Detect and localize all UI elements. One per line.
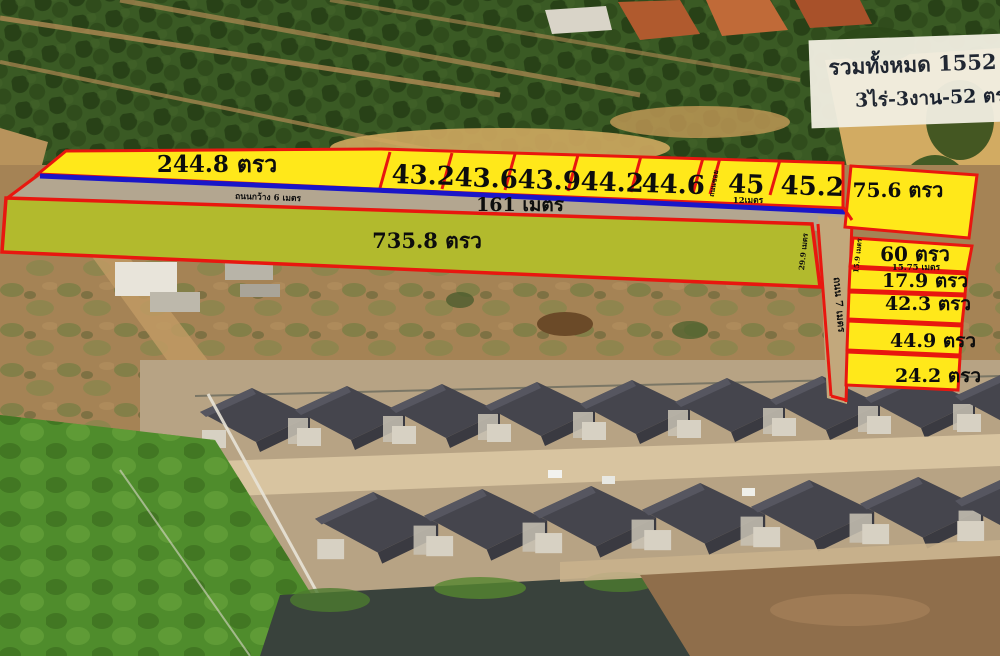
- car: [742, 488, 755, 496]
- label-plot-43-2: 43.2: [391, 160, 455, 192]
- label-road-width: ถนนกว้าง 6 เมตร: [235, 191, 302, 204]
- land-plot-listing-image: 244.8 ตรว 43.2 43.6 43.9 44.2 44.6 45 12…: [0, 0, 1000, 656]
- label-road-length: 161 เมตร: [476, 194, 565, 216]
- label-plot-75-6: 75.6 ตรว: [853, 178, 944, 202]
- label-plot-43-6: 43.6: [454, 163, 518, 195]
- label-plot-44-6: 44.6: [641, 169, 705, 201]
- label-plot-45-width: 12เมตร: [733, 196, 764, 206]
- summary-rai-ngan-wa: 3ไร่-3งาน-52 ตรว: [810, 78, 1000, 117]
- summary-total: รวมทั้งหมด 1552 ตรว: [809, 43, 1000, 85]
- label-plot-42-3: 42.3 ตรว: [885, 293, 971, 315]
- label-plot-17-9: 17.9 ตรว: [882, 270, 968, 292]
- label-plot-244-8: 244.8 ตรว: [157, 151, 277, 178]
- plot-75-6: [845, 166, 977, 238]
- car: [602, 476, 615, 484]
- label-plot-44-2: 44.2: [580, 167, 644, 199]
- label-plot-24-2: 24.2 ตรว: [895, 365, 981, 387]
- dirt-pile: [537, 312, 593, 336]
- label-plot-43-9: 43.9: [517, 165, 581, 197]
- car: [548, 470, 562, 478]
- label-plot-45-2: 45.2: [780, 171, 844, 203]
- label-plot-735-8: 735.8 ตรว: [372, 228, 482, 253]
- total-area-summary-box: รวมทั้งหมด 1552 ตรว 3ไร่-3งาน-52 ตรว: [809, 32, 1000, 129]
- label-plot-44-9: 44.9 ตรว: [890, 330, 976, 352]
